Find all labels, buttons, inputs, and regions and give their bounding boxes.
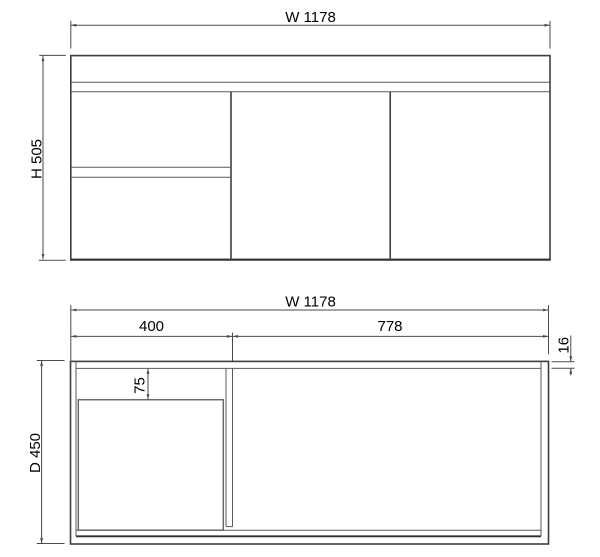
svg-text:D 450: D 450 — [27, 433, 44, 473]
svg-text:W 1178: W 1178 — [285, 9, 336, 26]
svg-text:W 1178: W 1178 — [285, 294, 336, 311]
svg-text:16: 16 — [556, 337, 573, 354]
svg-text:778: 778 — [377, 318, 402, 335]
svg-text:75: 75 — [132, 377, 149, 394]
svg-text:400: 400 — [139, 318, 164, 335]
svg-text:H 505: H 505 — [28, 139, 45, 179]
